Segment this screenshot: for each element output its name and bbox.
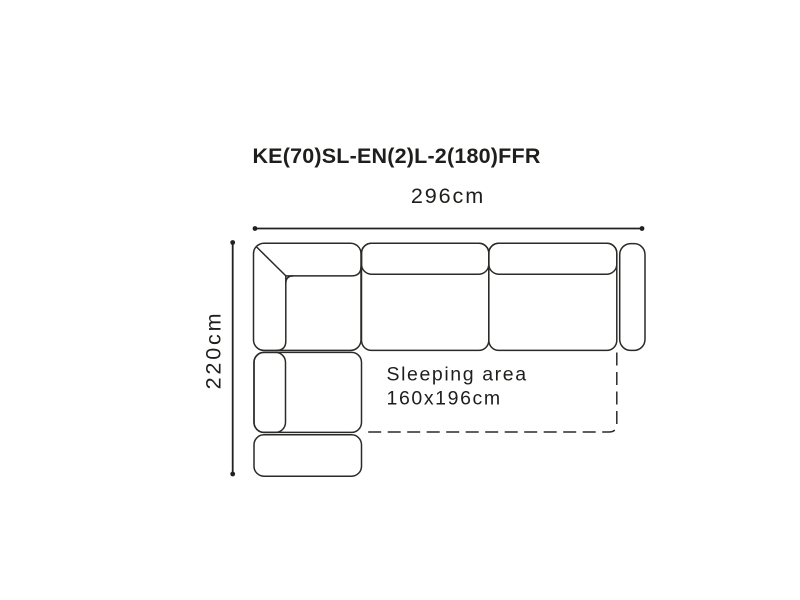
- svg-text:160x196cm: 160x196cm: [387, 387, 502, 409]
- svg-text:KE(70)SL-EN(2)L-2(180)FFR: KE(70)SL-EN(2)L-2(180)FFR: [252, 144, 540, 168]
- svg-text:296cm: 296cm: [411, 183, 485, 208]
- svg-text:220cm: 220cm: [201, 311, 226, 390]
- svg-text:Sleeping area: Sleeping area: [387, 363, 528, 385]
